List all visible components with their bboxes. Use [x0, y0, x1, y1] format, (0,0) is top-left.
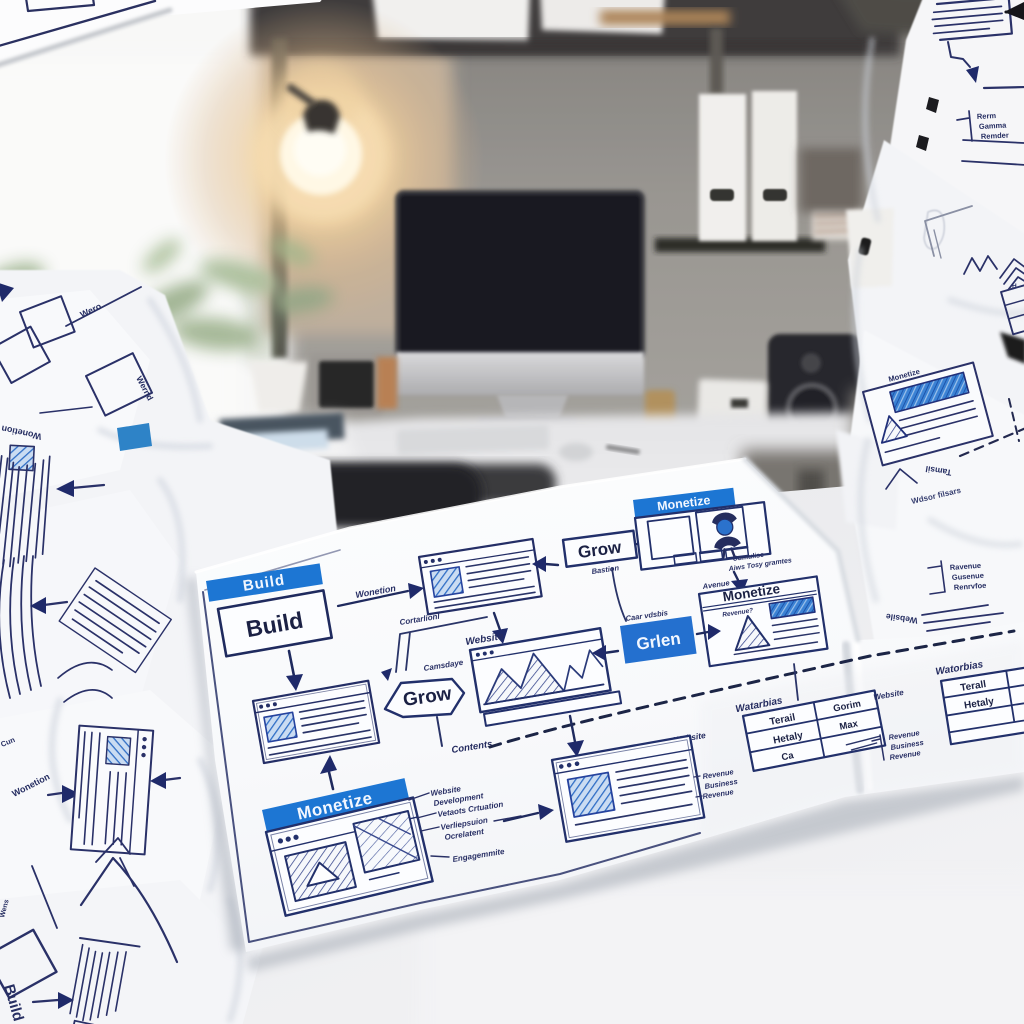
svg-text:Rerm: Rerm — [977, 111, 997, 121]
svg-text:Remder: Remder — [981, 131, 1009, 141]
svg-text:Gamma: Gamma — [979, 121, 1008, 131]
